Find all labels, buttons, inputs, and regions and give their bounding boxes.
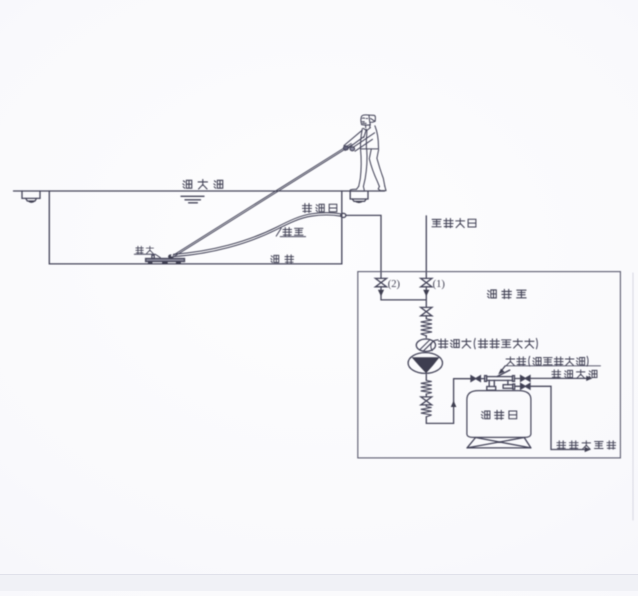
svg-text:(2): (2)	[388, 279, 401, 290]
svg-text:(1): (1)	[433, 279, 446, 290]
